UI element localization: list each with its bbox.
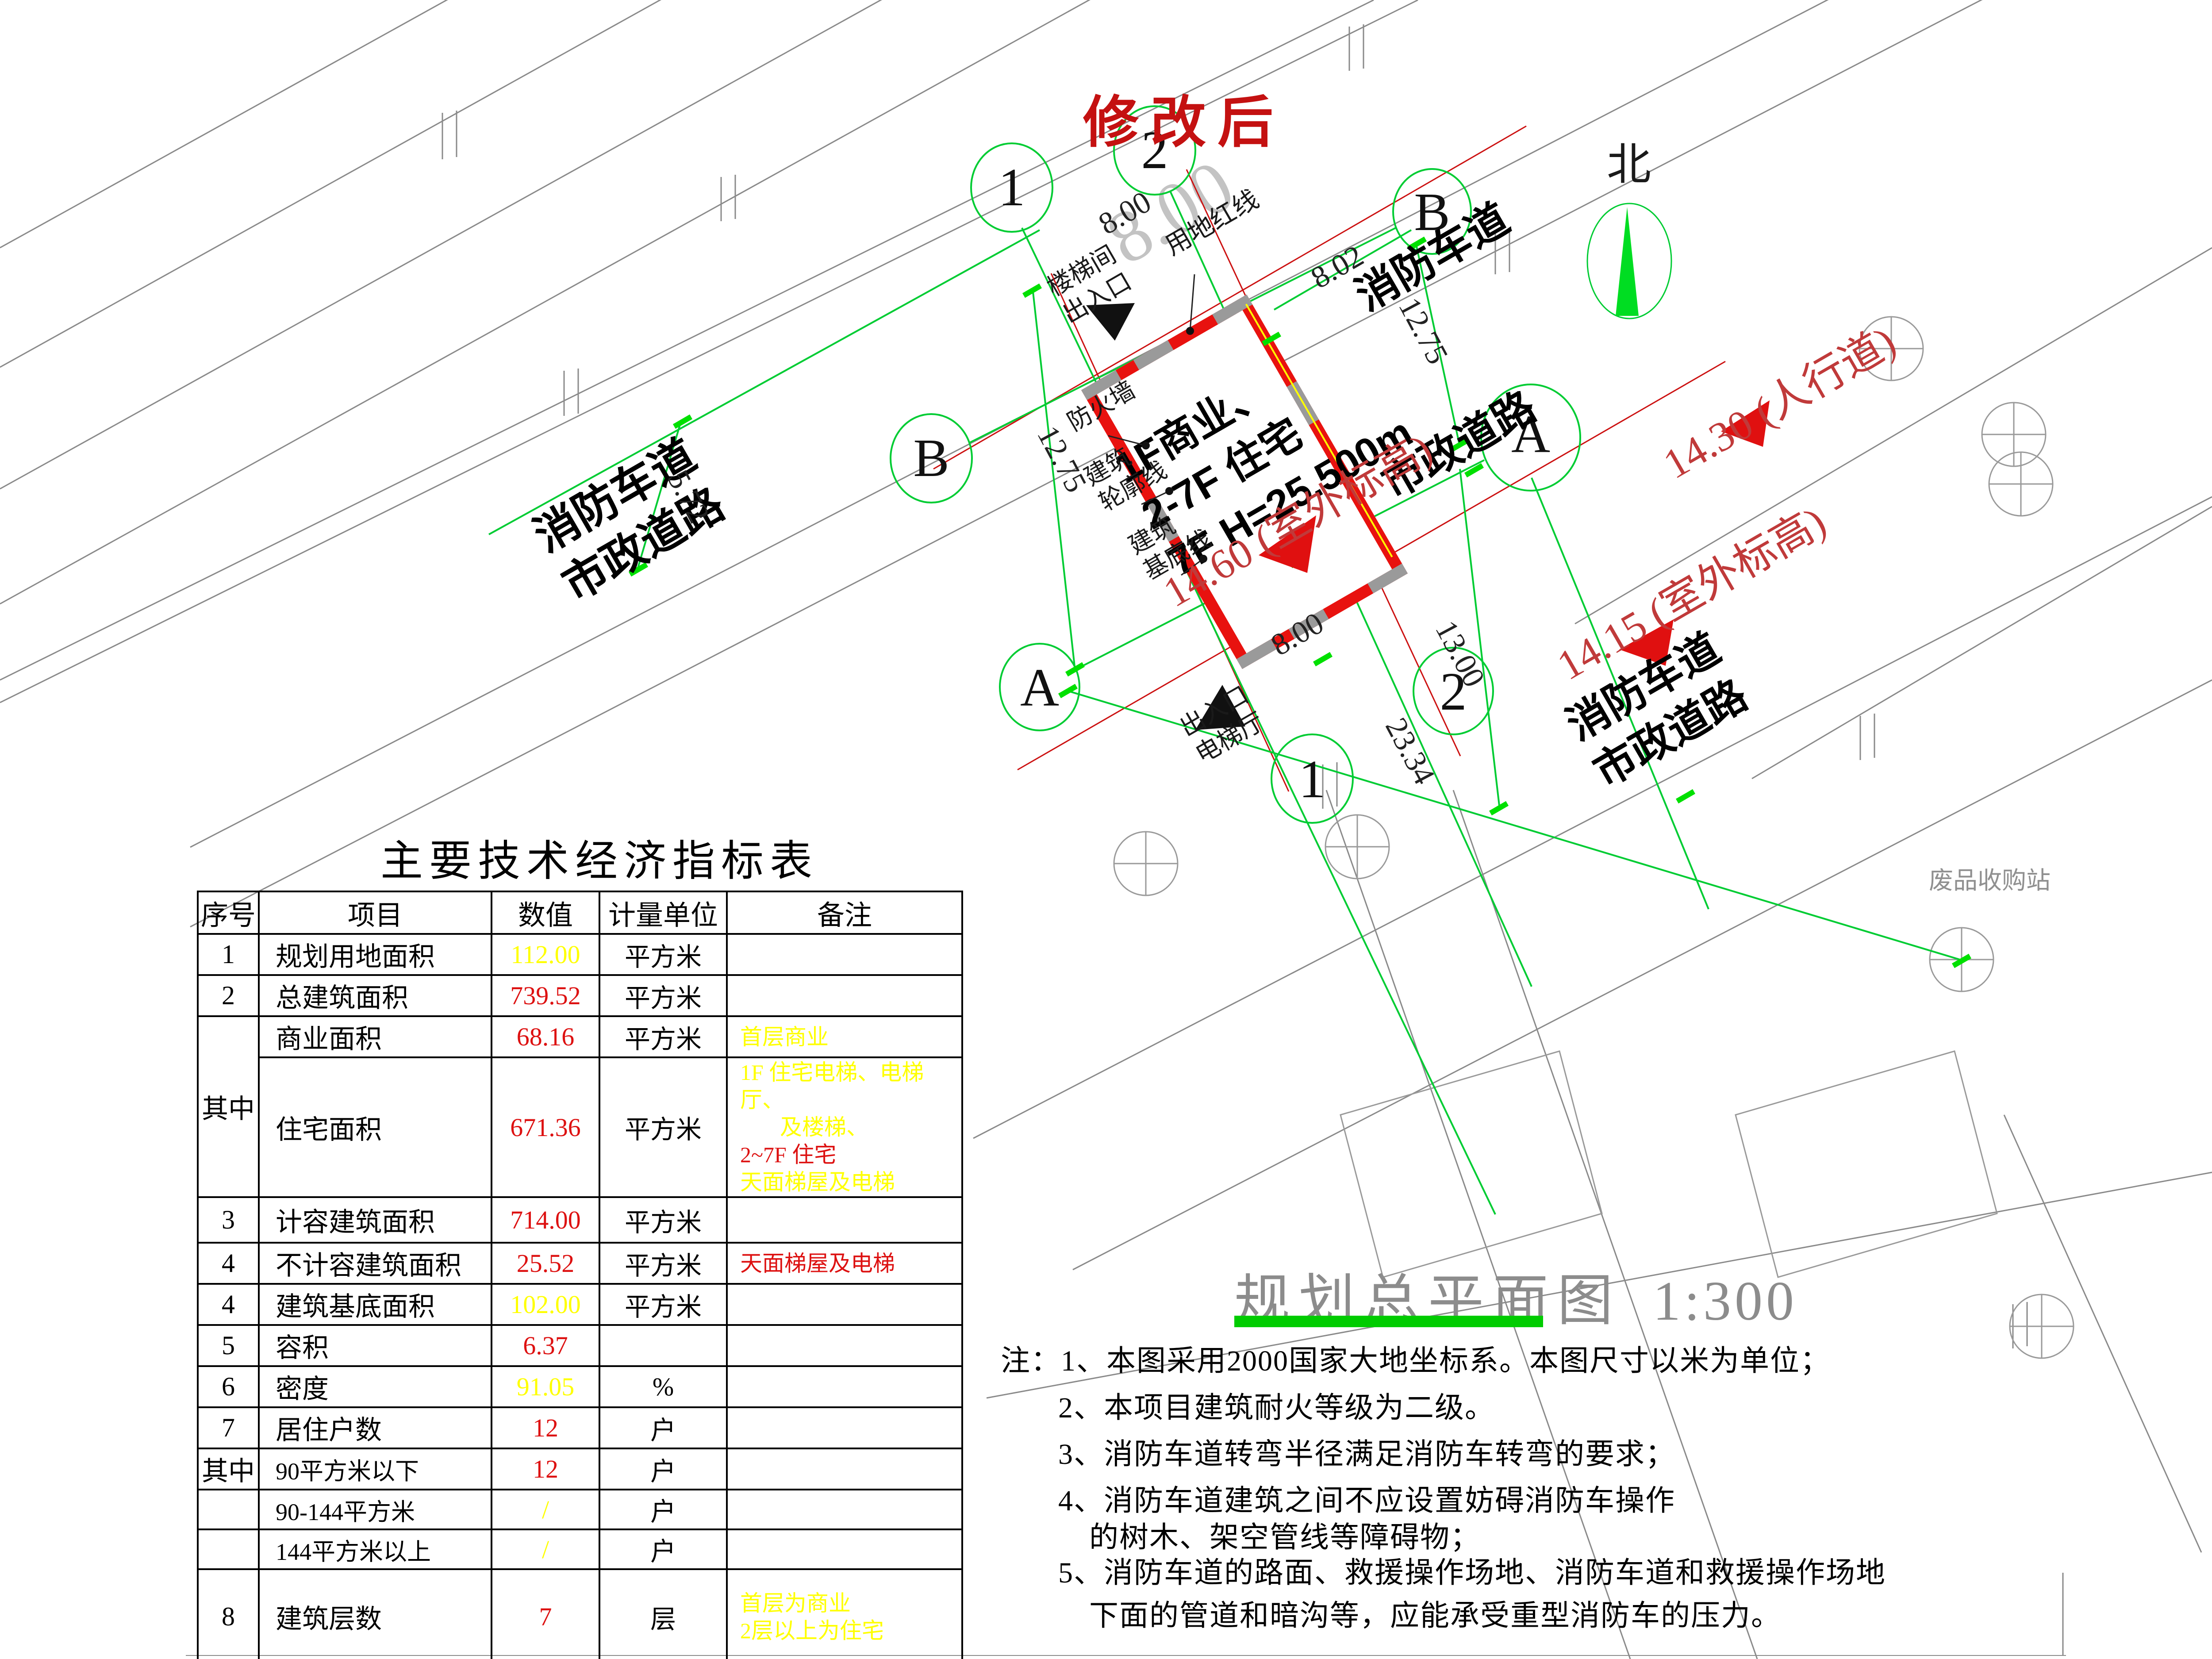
table-row: 3 计容建筑面积 714.00 平方米: [198, 1197, 962, 1243]
cell-remark: [727, 1529, 962, 1569]
cell-unit: [599, 1325, 727, 1366]
cell-value: 7: [492, 1569, 599, 1659]
table-row: 4 不计容建筑面积 25.52 平方米 天面梯屋及电梯: [198, 1243, 962, 1284]
cell-unit: 平方米: [599, 1243, 727, 1284]
site-plan-sheet: 1F商业、 2-7F 住宅 7F H=25.500m: [0, 0, 2212, 1659]
grid-bubble-1-bottom: 1: [1277, 749, 1348, 810]
cell-value: 12: [492, 1407, 599, 1448]
cell-item: 规划用地面积: [259, 934, 492, 975]
remark-line: 首层商业: [740, 1023, 961, 1051]
cell-no-merged: 其中: [198, 1016, 259, 1197]
table-row: 144平方米以上 / 户: [198, 1529, 962, 1569]
cell-no: 8: [198, 1569, 259, 1659]
cell-no: 6: [198, 1366, 259, 1407]
cell-no: 4: [198, 1243, 259, 1284]
note-line-2: 2、本项目建筑耐火等级为二级。: [1058, 1384, 1495, 1426]
table-row: 8 建筑层数 7 层 首层为商业 2层以上为住宅: [198, 1569, 962, 1659]
cell-item: 住宅面积: [259, 1057, 492, 1197]
header-remark: 备注: [727, 891, 962, 934]
cell-value: /: [492, 1529, 599, 1569]
remark-line: 首层为商业: [740, 1590, 961, 1617]
cell-no: 1: [198, 934, 259, 975]
cell-remark: [727, 934, 962, 975]
remark-line: 1F 住宅电梯、电梯厅、: [740, 1059, 961, 1114]
remark-line: 2层以上为住宅: [740, 1617, 961, 1644]
cell-item: 建筑层数: [259, 1569, 492, 1659]
table-row: 6 密度 91.05 %: [198, 1366, 962, 1407]
cell-remark: [727, 1325, 962, 1366]
cell-item: 商业面积: [259, 1016, 492, 1057]
cell-remark: [727, 1284, 962, 1325]
revision-stamp: 修改后: [1083, 77, 1285, 158]
cell-value: 102.00: [492, 1284, 599, 1325]
cell-item: 不计容建筑面积: [259, 1243, 492, 1284]
cell-value: /: [492, 1490, 599, 1529]
cell-no: 2: [198, 975, 259, 1016]
table-header-row: 序号 项目 数值 计量单位 备注: [198, 891, 962, 934]
cell-no: 7: [198, 1407, 259, 1448]
table-row: 5 容积 6.37: [198, 1325, 962, 1366]
grid-bubble-1-top: 1: [976, 157, 1047, 219]
cell-unit: 户: [599, 1529, 727, 1569]
table-title: 主要技术经济指标表: [380, 826, 818, 888]
cell-unit: 平方米: [599, 1197, 727, 1243]
remark-line: 天面梯屋及电梯: [740, 1250, 961, 1277]
cell-no: [198, 1490, 259, 1529]
cell-remark: 天面梯屋及电梯: [727, 1243, 962, 1284]
note-line-4: 4、消防车道建筑之间不应设置妨碍消防车操作: [1058, 1477, 1675, 1519]
cell-item: 90平方米以下: [259, 1448, 492, 1490]
cell-item: 建筑基底面积: [259, 1284, 492, 1325]
cell-remark: [727, 1366, 962, 1407]
cell-value: 68.16: [492, 1016, 599, 1057]
cell-unit: 户: [599, 1448, 727, 1490]
cell-unit: 户: [599, 1490, 727, 1529]
cell-value: 6.37: [492, 1325, 599, 1366]
cell-no: 5: [198, 1325, 259, 1366]
plan-scale: 1:300: [1653, 1271, 1797, 1332]
cell-item: 计容建筑面积: [259, 1197, 492, 1243]
north-label: 北: [1607, 128, 1651, 192]
grid-bubble-A-bottom: A: [1004, 657, 1075, 719]
header-no: 序号: [198, 891, 259, 934]
dimension-ticks: [630, 239, 1970, 966]
cell-unit: %: [599, 1366, 727, 1407]
cell-item: 总建筑面积: [259, 975, 492, 1016]
cell-unit: 平方米: [599, 975, 727, 1016]
cell-remark: [727, 1490, 962, 1529]
cell-value: 714.00: [492, 1197, 599, 1243]
cell-remark: 首层商业: [727, 1016, 962, 1057]
table-row: 其中 商业面积 68.16 平方米 首层商业: [198, 1016, 962, 1057]
table-row: 90-144平方米 / 户: [198, 1490, 962, 1529]
header-value: 数值: [492, 891, 599, 934]
cell-remark: 1F 住宅电梯、电梯厅、 及楼梯、 2~7F 住宅 天面梯屋及电梯: [727, 1057, 962, 1197]
cell-item: 密度: [259, 1366, 492, 1407]
cell-no: 4: [198, 1284, 259, 1325]
table-row: 住宅面积 671.36 平方米 1F 住宅电梯、电梯厅、 及楼梯、 2~7F 住…: [198, 1057, 962, 1197]
note-line-6: 5、消防车道的路面、救援操作场地、消防车道和救援操作场地: [1058, 1549, 1886, 1591]
cell-unit: 户: [599, 1407, 727, 1448]
cell-item: 144平方米以上: [259, 1529, 492, 1569]
cell-value: 91.05: [492, 1366, 599, 1407]
cell-unit: 平方米: [599, 934, 727, 975]
cell-remark: [727, 1197, 962, 1243]
cell-value: 25.52: [492, 1243, 599, 1284]
cell-remark: [727, 1407, 962, 1448]
remark-line: 及楼梯、: [740, 1114, 961, 1141]
table-row: 1 规划用地面积 112.00 平方米: [198, 934, 962, 975]
table-row: 2 总建筑面积 739.52 平方米: [198, 975, 962, 1016]
cell-value: 671.36: [492, 1057, 599, 1197]
grid-bubble-B-left: B: [896, 427, 967, 489]
note-line-1: 注：1、本图采用2000国家大地坐标系。本图尺寸以米为单位；: [1001, 1337, 1830, 1379]
cell-value: 12: [492, 1448, 599, 1490]
cell-remark: [727, 975, 962, 1016]
cell-item: 容积: [259, 1325, 492, 1366]
plan-title-underline: [1234, 1316, 1543, 1327]
note-line-7: 下面的管道和暗沟等，应能承受重型消防车的压力。: [1089, 1592, 1781, 1634]
table-row: 4 建筑基底面积 102.00 平方米: [198, 1284, 962, 1325]
note-line-3: 3、消防车道转弯半径满足消防车转弯的要求；: [1058, 1430, 1675, 1473]
header-unit: 计量单位: [599, 891, 727, 934]
cell-no: 3: [198, 1197, 259, 1243]
cell-no: 其中: [198, 1448, 259, 1490]
cell-unit: 平方米: [599, 1057, 727, 1197]
cell-unit: 层: [599, 1569, 727, 1659]
remark-line: 天面梯屋及电梯: [740, 1168, 961, 1196]
cell-unit: 平方米: [599, 1016, 727, 1057]
header-item: 项目: [259, 891, 492, 934]
remark-line: 2~7F 住宅: [740, 1141, 961, 1168]
indicator-table: 序号 项目 数值 计量单位 备注 1 规划用地面积 112.00 平方米 2 总…: [197, 891, 961, 1659]
cell-value: 739.52: [492, 975, 599, 1016]
cell-value: 112.00: [492, 934, 599, 975]
cell-remark: 首层为商业 2层以上为住宅: [727, 1569, 962, 1659]
cell-item: 居住户数: [259, 1407, 492, 1448]
cell-remark: [727, 1448, 962, 1490]
table-row: 7 居住户数 12 户: [198, 1407, 962, 1448]
table-row: 其中 90平方米以下 12 户: [198, 1448, 962, 1490]
cell-no: [198, 1529, 259, 1569]
cell-item: 90-144平方米: [259, 1490, 492, 1529]
scrap-station-label: 废品收购站: [1929, 860, 2051, 896]
cell-unit: 平方米: [599, 1284, 727, 1325]
